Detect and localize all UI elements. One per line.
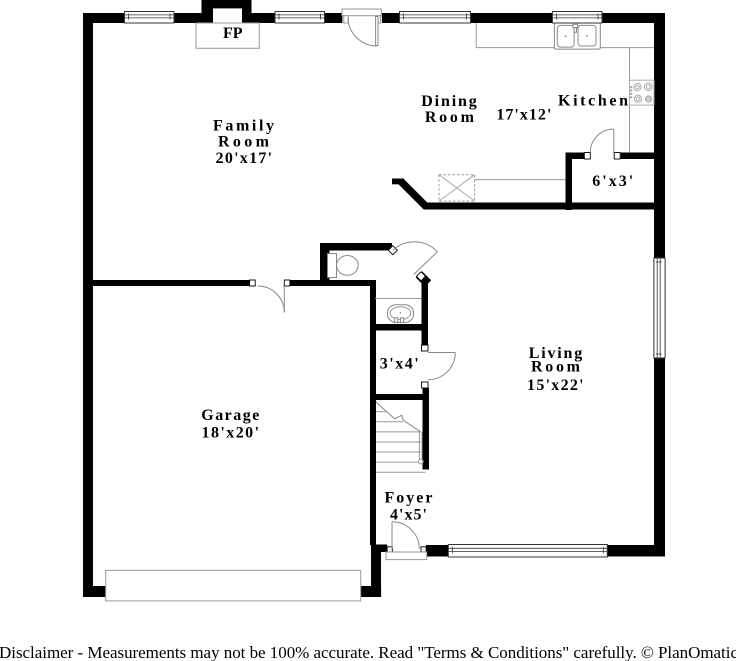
svg-text:Room: Room [531, 358, 581, 375]
svg-text:17'x12': 17'x12' [496, 107, 551, 124]
svg-text:Garage: Garage [201, 407, 259, 424]
svg-text:Foyer: Foyer [385, 490, 433, 507]
svg-text:15'x22': 15'x22' [527, 377, 584, 394]
svg-text:Room: Room [218, 133, 270, 150]
svg-text:20'x17': 20'x17' [216, 150, 272, 167]
svg-text:Room: Room [425, 109, 475, 126]
svg-text:Dining: Dining [421, 93, 477, 110]
svg-text:FP: FP [223, 25, 243, 42]
svg-text:4'x5': 4'x5' [390, 507, 427, 524]
svg-text:Disclaimer - Measurements may: Disclaimer - Measurements may not be 100… [0, 643, 736, 661]
svg-text:18'x20': 18'x20' [202, 425, 259, 442]
